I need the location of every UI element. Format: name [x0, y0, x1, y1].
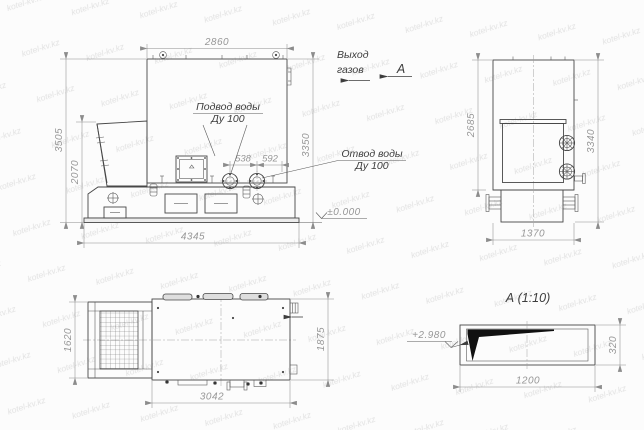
flue-slots: [163, 294, 268, 301]
dim-side-base-width: 1370: [521, 229, 545, 240]
dim-duct-length: 1200: [516, 376, 540, 387]
dim-front-base-width: 4345: [181, 232, 205, 243]
dim-front-right-height: 3350: [301, 133, 312, 157]
ground-level-label: ±0.000: [327, 207, 361, 218]
dim-front-hopper-height: 2070: [70, 160, 81, 185]
dim-plan-grate-width: 1620: [63, 328, 74, 352]
water-outlet-label-2: Ду 100: [354, 160, 388, 172]
dim-outlet-offset: 592: [262, 154, 279, 165]
technical-drawing-canvas: kotel-kv.kz kotel-kv.kz: [0, 0, 644, 430]
water-outlet-label-1: Отвод воды: [341, 148, 403, 160]
water-inlet-label-2: Ду 100: [210, 113, 244, 125]
dim-plan-body-length: 3042: [200, 392, 224, 403]
dim-side-body-height: 2685: [466, 113, 477, 138]
gas-outlet-label-2: газов: [337, 64, 364, 76]
grate-mesh: [100, 311, 138, 369]
dim-inlet-offset: 538: [235, 154, 252, 165]
section-a-title: А (1:10): [505, 291, 550, 305]
dim-front-overall-height: 3505: [54, 128, 65, 152]
water-inlet-label-1: Подвод воды: [196, 101, 260, 113]
gas-outlet-label-1: Выход: [337, 49, 369, 61]
dim-plan-overall-width: 1875: [316, 327, 327, 351]
dim-side-overall-height: 3340: [586, 129, 597, 153]
watermark-layer: [0, 0, 644, 430]
boiler-drawing: kotel-kv.kz kotel-kv.kz: [0, 0, 644, 430]
dim-duct-height: 320: [608, 336, 619, 354]
section-elevation-label: +2.980: [412, 330, 446, 341]
section-marker-label: А: [396, 62, 405, 76]
dim-front-top-width: 2860: [204, 37, 229, 48]
